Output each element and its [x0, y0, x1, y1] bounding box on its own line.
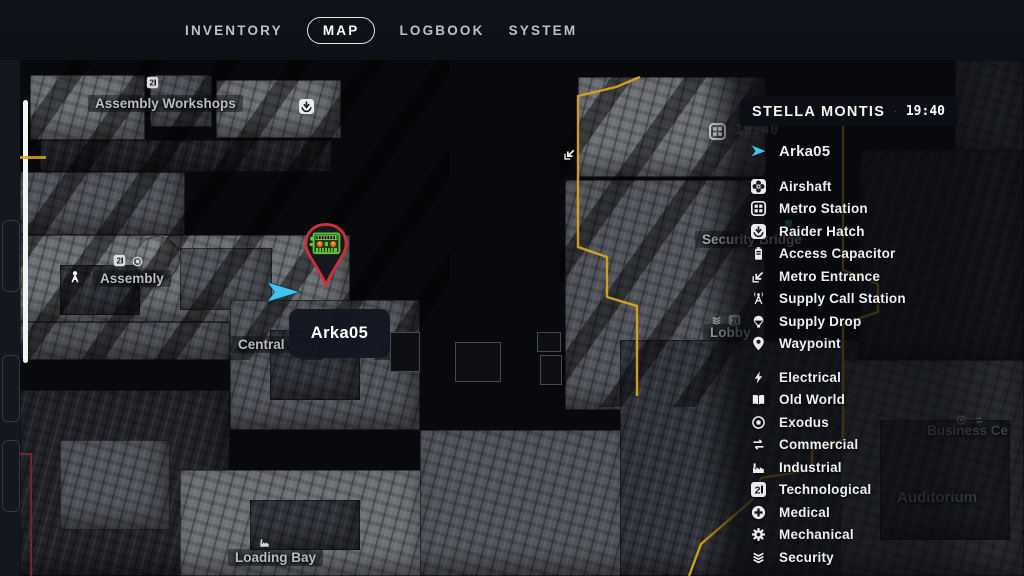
map-label-assembly: Assembly — [93, 270, 171, 287]
legend-item-metro-entrance: Metro Entrance — [750, 265, 1020, 288]
legend-item-label: Commercial — [779, 437, 858, 452]
edge-outline — [2, 440, 20, 512]
person-icon — [68, 270, 82, 289]
legend-item-label: Access Capacitor — [779, 246, 896, 261]
legend-item-supply-drop: Supply Drop — [750, 310, 1020, 333]
supply-drop-icon — [750, 313, 767, 330]
legend-item-airshaft: Airshaft — [750, 175, 1020, 198]
legend-item-label: Metro Entrance — [779, 269, 880, 284]
legend-item-label: Metro Station — [779, 201, 868, 216]
legend-item-label: Old World — [779, 392, 845, 407]
legend-item-industrial: Industrial — [750, 456, 1020, 479]
legend-item-metro-station: Metro Station — [750, 198, 1020, 221]
header-divider — [895, 111, 896, 112]
edge-outline — [2, 355, 20, 422]
exodus-icon — [750, 414, 767, 431]
raider-hatch-icon[interactable] — [298, 98, 315, 115]
metro-entrance-icon — [562, 146, 578, 162]
edge-outline — [2, 220, 20, 292]
legend-item-label: Security — [779, 550, 834, 565]
legend-item-old-world: Old World — [750, 389, 1020, 412]
technological-icon: 2 — [750, 481, 767, 498]
legend-group-gap — [750, 355, 1020, 366]
legend-item-tracked-arka05[interactable]: Arka05 — [750, 140, 1020, 162]
legend-item-waypoint: Waypoint — [750, 333, 1020, 356]
tab-logbook[interactable]: LOGBOOK — [399, 23, 484, 38]
region-header: STELLA MONTIS 19:40 — [740, 97, 957, 126]
legend-item-medical: Medical — [750, 501, 1020, 524]
legend-item-exodus: Exodus — [750, 411, 1020, 434]
access-capacitor-icon — [750, 245, 767, 262]
legend-item-label: Raider Hatch — [779, 224, 865, 239]
map-red-boundary — [20, 453, 31, 455]
legend-item-raider-hatch: Raider Hatch — [750, 220, 1020, 243]
old-world-icon — [750, 391, 767, 408]
marker-tooltip: Arka05 — [289, 309, 390, 358]
map-label-loading-bay: Loading Bay — [228, 549, 323, 566]
tab-inventory[interactable]: INVENTORY — [185, 23, 283, 38]
security-icon — [750, 549, 767, 566]
metro-entrance-icon — [750, 268, 767, 285]
legend-item-label: Arka05 — [779, 143, 830, 160]
top-nav-bar: INVENTORY MAP LOGBOOK SYSTEM — [0, 0, 1024, 60]
legend-item-commercial: Commercial — [750, 434, 1020, 457]
waypoint-icon — [750, 335, 767, 352]
map-red-boundary — [30, 453, 32, 576]
technological-icon: 2 — [146, 76, 159, 89]
legend-item-label: Technological — [779, 482, 871, 497]
legend-item-supply-call-station: Supply Call Station — [750, 288, 1020, 311]
supply-call-station-icon — [750, 290, 767, 307]
map-yellow-segment — [20, 156, 46, 159]
commercial-icon — [750, 436, 767, 453]
left-edge-panel — [0, 60, 20, 576]
map-edge-indicator — [23, 100, 28, 363]
legend-item-label: Industrial — [779, 460, 842, 475]
player-position-arrow — [266, 281, 302, 308]
metro-station-icon[interactable] — [708, 122, 727, 141]
technological-icon: 2 — [113, 254, 126, 267]
metro-station-icon — [750, 200, 767, 217]
legend-item-label: Medical — [779, 505, 830, 520]
marker-tooltip-label: Arka05 — [311, 324, 368, 343]
medical-icon — [750, 504, 767, 521]
svg-text:2: 2 — [117, 257, 122, 266]
player-arrow-icon — [750, 143, 767, 160]
legend-item-security: Security — [750, 546, 1020, 569]
legend-item-technological: 2 Technological — [750, 479, 1020, 502]
electrical-icon — [750, 369, 767, 386]
quest-pin-marker[interactable] — [303, 220, 349, 297]
legend-item-mechanical: Mechanical — [750, 524, 1020, 547]
svg-text:2: 2 — [150, 79, 155, 88]
legend-item-label: Electrical — [779, 370, 841, 385]
map-label-assembly-workshops: Assembly Workshops — [88, 95, 243, 112]
raider-hatch-icon — [750, 223, 767, 240]
region-time: 19:40 — [906, 104, 945, 119]
exodus-icon — [131, 255, 144, 268]
region-title: STELLA MONTIS — [752, 104, 885, 120]
legend-item-label: Airshaft — [779, 179, 832, 194]
airshaft-icon — [750, 178, 767, 195]
legend-item-label: Supply Drop — [779, 314, 861, 329]
legend-item-label: Exodus — [779, 415, 829, 430]
legend-item-label: Waypoint — [779, 336, 841, 351]
tab-system[interactable]: SYSTEM — [509, 23, 578, 38]
legend-item-label: Supply Call Station — [779, 291, 906, 306]
legend-item-access-capacitor: Access Capacitor — [750, 243, 1020, 266]
map-legend: Arka05 Airshaft Metro Station Raider Hat… — [750, 140, 1020, 569]
mechanical-icon — [750, 526, 767, 543]
legend-item-electrical: Electrical — [750, 366, 1020, 389]
tab-map[interactable]: MAP — [307, 17, 376, 44]
svg-text:2: 2 — [755, 485, 761, 497]
industrial-icon — [258, 536, 271, 549]
industrial-icon — [750, 459, 767, 476]
legend-item-label: Mechanical — [779, 527, 854, 542]
legend-group-gap — [750, 162, 1020, 175]
nav-tabs: INVENTORY MAP LOGBOOK SYSTEM — [185, 0, 577, 60]
